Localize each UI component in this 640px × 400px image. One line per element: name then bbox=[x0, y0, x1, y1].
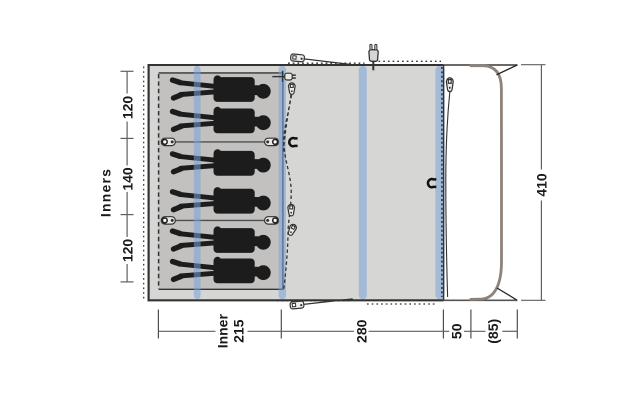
svg-text:140: 140 bbox=[119, 167, 135, 191]
svg-text:215: 215 bbox=[231, 319, 247, 343]
svg-text:120: 120 bbox=[119, 239, 135, 263]
svg-text:410: 410 bbox=[533, 173, 549, 197]
svg-text:50: 50 bbox=[449, 323, 465, 339]
svg-text:280: 280 bbox=[353, 319, 369, 343]
svg-text:(85): (85) bbox=[485, 319, 501, 344]
svg-text:Inners: Inners bbox=[97, 168, 113, 217]
svg-text:120: 120 bbox=[119, 96, 135, 120]
svg-text:Inner: Inner bbox=[215, 314, 231, 349]
